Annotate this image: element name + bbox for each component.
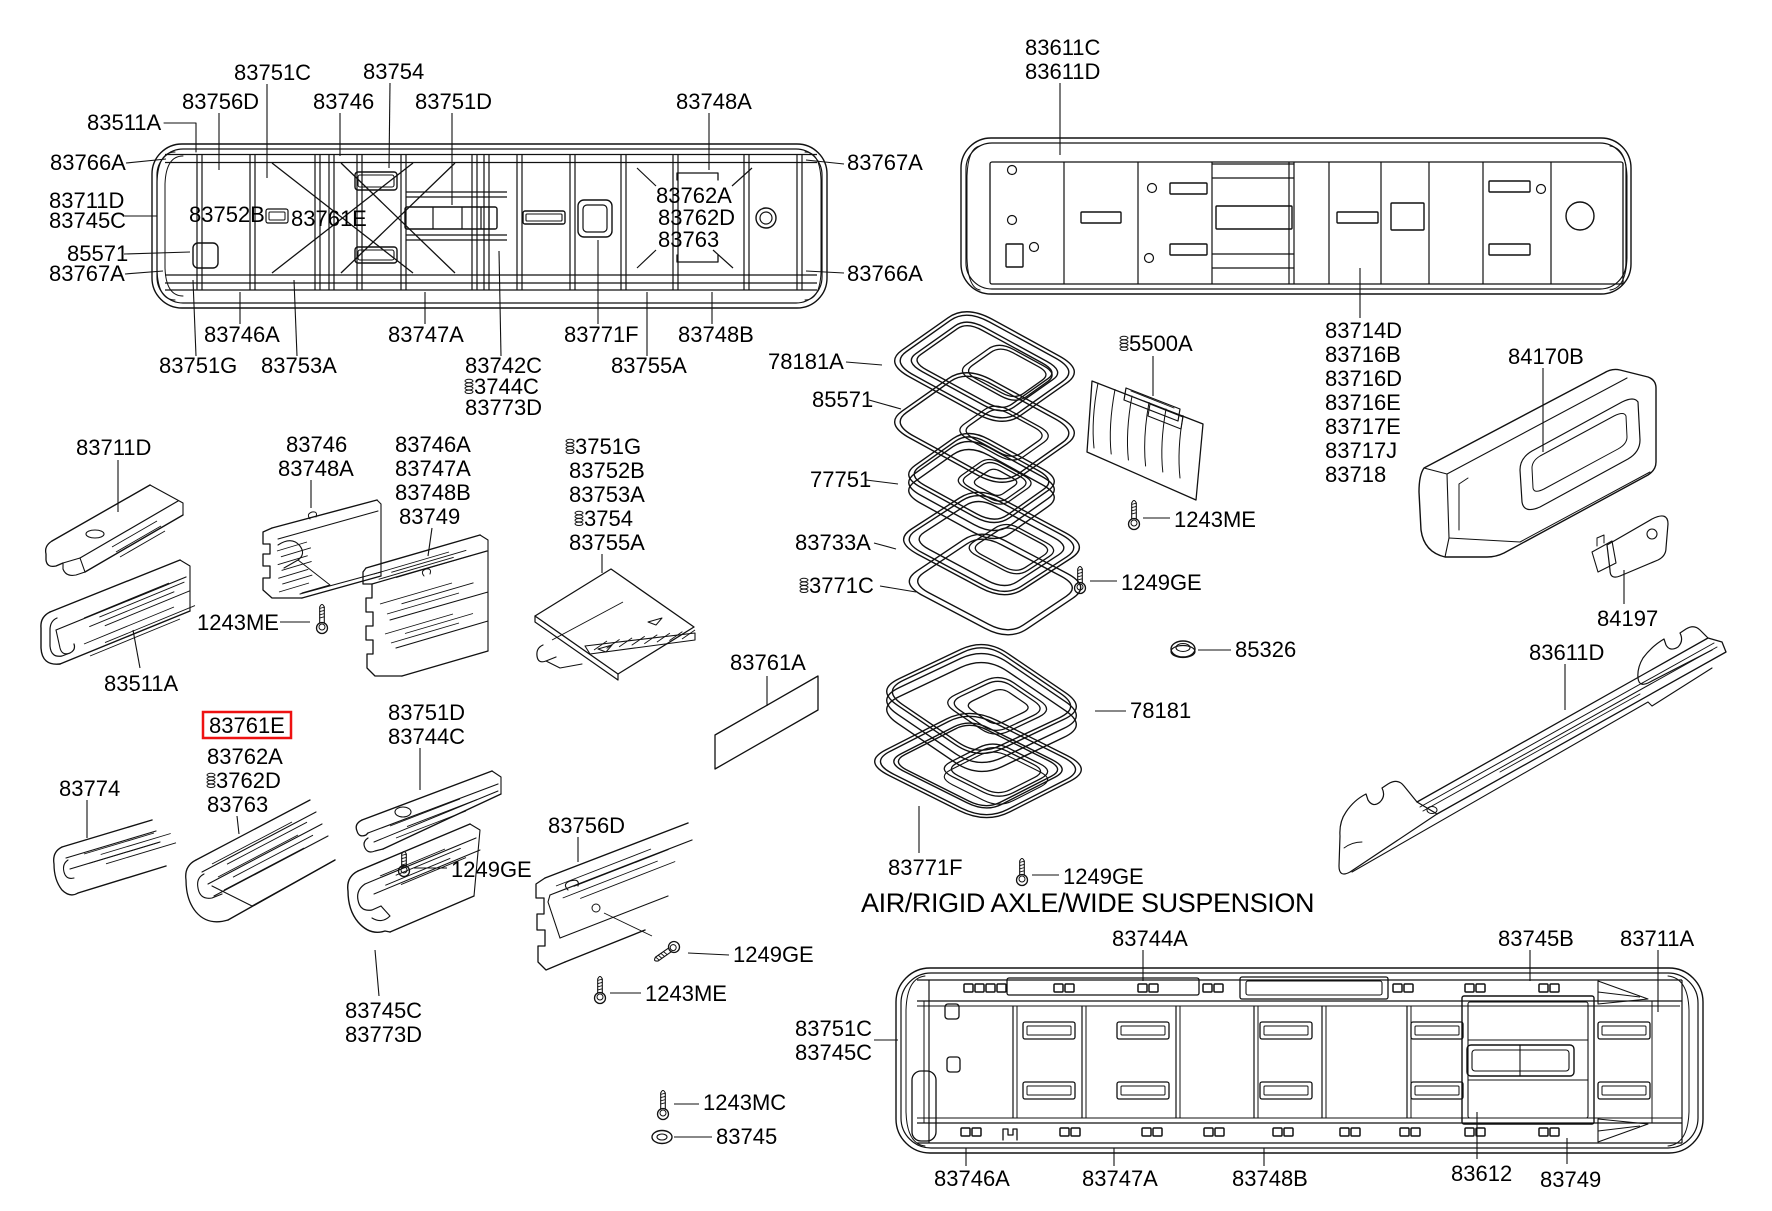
svg-text:1243ME: 1243ME	[645, 981, 727, 1006]
svg-text:83511A: 83511A	[104, 671, 179, 696]
svg-text:1249GE: 1249GE	[451, 857, 532, 882]
svg-text:83733A: 83733A	[795, 530, 871, 555]
svg-text:83718: 83718	[1325, 462, 1386, 487]
svg-text:83755A: 83755A	[611, 353, 687, 378]
svg-text:1249GE: 1249GE	[733, 942, 814, 967]
svg-text:83752B: 83752B	[189, 202, 265, 227]
svg-text:83753A: 83753A	[261, 353, 337, 378]
svg-text:83748B: 83748B	[395, 480, 471, 505]
svg-text:1243ME: 1243ME	[1174, 507, 1256, 532]
svg-text:83745C: 83745C	[345, 998, 422, 1023]
svg-text:83746: 83746	[313, 89, 374, 114]
svg-text:84170B: 84170B	[1508, 344, 1584, 369]
svg-text:83748B: 83748B	[678, 322, 754, 347]
svg-text:AIR/RIGID AXLE/WIDE SUSPENSION: AIR/RIGID AXLE/WIDE SUSPENSION	[861, 888, 1314, 918]
svg-text:83754: 83754	[363, 59, 424, 84]
svg-text:83747A: 83747A	[395, 456, 471, 481]
svg-text:83748A: 83748A	[676, 89, 752, 114]
svg-text:83752B: 83752B	[569, 458, 645, 483]
svg-text:83745: 83745	[716, 1124, 777, 1149]
svg-text:83711A: 83711A	[1620, 926, 1695, 951]
svg-text:83761A: 83761A	[730, 650, 806, 675]
svg-text:83744C: 83744C	[388, 724, 465, 749]
svg-text:1249GE: 1249GE	[1063, 864, 1144, 889]
svg-text:5500A: 5500A	[1129, 331, 1193, 356]
svg-text:85571: 85571	[812, 387, 873, 412]
svg-text:83746A: 83746A	[934, 1166, 1010, 1191]
svg-text:83748A: 83748A	[278, 456, 354, 481]
svg-text:83748B: 83748B	[1232, 1166, 1308, 1191]
svg-text:84197: 84197	[1597, 606, 1658, 631]
svg-text:83511A: 83511A	[87, 110, 162, 135]
svg-text:83717J: 83717J	[1325, 438, 1397, 463]
svg-text:83744A: 83744A	[1112, 926, 1188, 951]
svg-text:83611D: 83611D	[1025, 59, 1100, 84]
svg-text:1243ME: 1243ME	[197, 610, 279, 635]
svg-text:83763: 83763	[658, 227, 719, 252]
svg-text:83763: 83763	[207, 792, 268, 817]
svg-text:83749: 83749	[399, 504, 460, 529]
svg-text:3762D: 3762D	[216, 768, 281, 793]
svg-text:83762A: 83762A	[207, 744, 283, 769]
svg-text:83716B: 83716B	[1325, 342, 1401, 367]
svg-text:83612: 83612	[1451, 1161, 1512, 1186]
svg-text:83774: 83774	[59, 776, 120, 801]
svg-text:83749: 83749	[1540, 1167, 1601, 1192]
svg-text:83766A: 83766A	[50, 150, 126, 175]
svg-text:83711D: 83711D	[76, 435, 151, 460]
svg-text:83771F: 83771F	[564, 322, 639, 347]
svg-text:83714D: 83714D	[1325, 318, 1402, 343]
svg-text:83611D: 83611D	[1529, 640, 1604, 665]
svg-text:3754: 3754	[584, 506, 633, 531]
svg-text:83773D: 83773D	[465, 395, 542, 420]
svg-text:83717E: 83717E	[1325, 414, 1401, 439]
svg-text:83756D: 83756D	[548, 813, 625, 838]
svg-text:83746: 83746	[286, 432, 347, 457]
svg-text:83747A: 83747A	[388, 322, 464, 347]
svg-text:77751: 77751	[810, 467, 871, 492]
svg-text:83716E: 83716E	[1325, 390, 1401, 415]
svg-text:83747A: 83747A	[1082, 1166, 1158, 1191]
svg-text:3751G: 3751G	[575, 434, 641, 459]
svg-text:83751D: 83751D	[415, 89, 492, 114]
svg-text:83767A: 83767A	[49, 261, 125, 286]
svg-text:78181: 78181	[1130, 698, 1191, 723]
svg-text:83751D: 83751D	[388, 700, 465, 725]
svg-text:83746A: 83746A	[204, 322, 280, 347]
svg-text:83761E: 83761E	[209, 713, 285, 738]
svg-text:83746A: 83746A	[395, 432, 471, 457]
svg-text:83771F: 83771F	[888, 855, 963, 880]
svg-text:83755A: 83755A	[569, 530, 645, 555]
svg-text:83753A: 83753A	[569, 482, 645, 507]
svg-text:83761E: 83761E	[291, 206, 367, 231]
svg-text:3771C: 3771C	[809, 573, 874, 598]
svg-text:83745C: 83745C	[795, 1040, 872, 1065]
svg-text:83716D: 83716D	[1325, 366, 1402, 391]
svg-text:1249GE: 1249GE	[1121, 570, 1202, 595]
svg-text:1243MC: 1243MC	[703, 1090, 786, 1115]
svg-text:83767A: 83767A	[847, 150, 923, 175]
svg-text:83745C: 83745C	[49, 208, 126, 233]
svg-text:78181A: 78181A	[768, 349, 844, 374]
svg-text:83766A: 83766A	[847, 261, 923, 286]
svg-text:83611C: 83611C	[1025, 35, 1101, 60]
svg-text:83751C: 83751C	[795, 1016, 872, 1041]
svg-text:83745B: 83745B	[1498, 926, 1574, 951]
svg-text:85326: 85326	[1235, 637, 1296, 662]
svg-text:83751C: 83751C	[234, 60, 311, 85]
svg-text:83756D: 83756D	[182, 89, 259, 114]
svg-text:83751G: 83751G	[159, 353, 237, 378]
svg-text:83773D: 83773D	[345, 1022, 422, 1047]
